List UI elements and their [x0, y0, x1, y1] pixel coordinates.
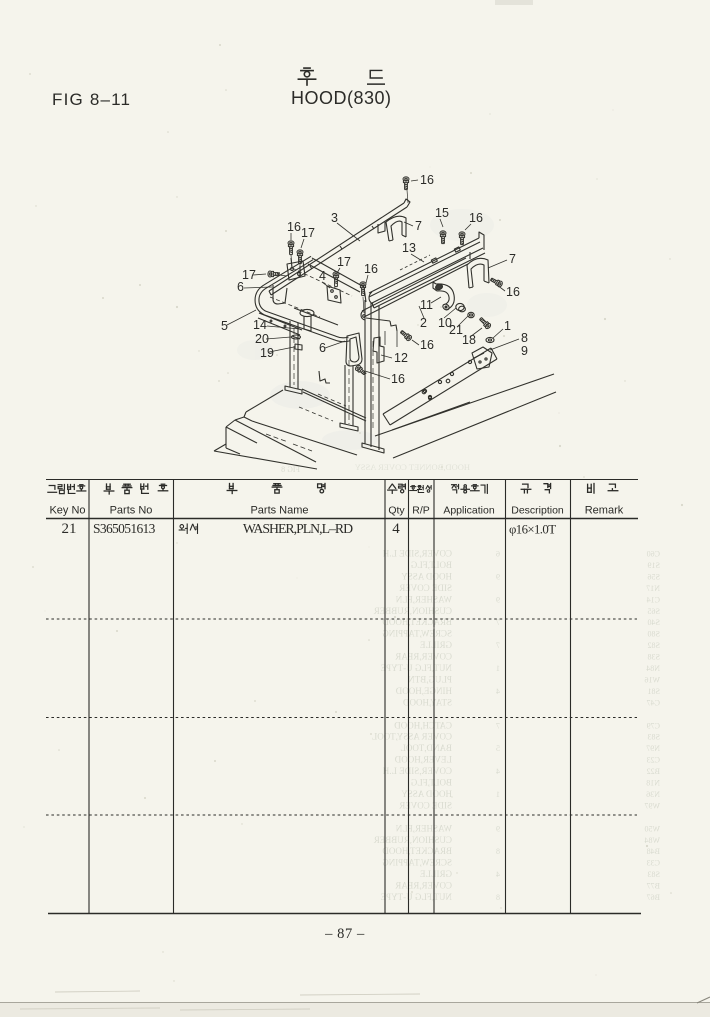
svg-text:S40: S40: [648, 618, 660, 627]
svg-text:SCREW,TAPPING: SCREW,TAPPING: [382, 629, 452, 639]
svg-text:C33: C33: [647, 859, 660, 868]
svg-text:1: 1: [504, 319, 511, 333]
svg-text:N97: N97: [646, 744, 660, 753]
svg-text:BOLT,FLG: BOLT,FLG: [410, 778, 452, 788]
svg-text:S38: S38: [648, 653, 660, 662]
svg-text:B22: B22: [647, 767, 660, 776]
svg-text:NUT,FLG U-TYPE: NUT,FLG U-TYPE: [380, 892, 452, 902]
svg-text:– 87 –: – 87 –: [324, 926, 365, 942]
svg-text:W84: W84: [644, 836, 660, 845]
svg-text:WASHER,PLN,L–RD: WASHER,PLN,L–RD: [243, 521, 353, 536]
svg-text:Remark: Remark: [585, 505, 624, 517]
svg-text:N18: N18: [646, 779, 660, 788]
svg-text:3: 3: [331, 211, 338, 225]
svg-text:R/P: R/P: [412, 505, 430, 517]
svg-text:7: 7: [509, 252, 516, 266]
svg-text:17: 17: [337, 255, 351, 269]
svg-text:16: 16: [469, 211, 483, 225]
svg-text:COVER,REAR: COVER,REAR: [395, 652, 452, 662]
svg-text:SCREW,TAPPING: SCREW,TAPPING: [382, 858, 452, 868]
svg-text:21: 21: [62, 521, 77, 537]
svg-text:LEVER,HOOD: LEVER,HOOD: [394, 755, 452, 765]
svg-text:S65: S65: [648, 607, 660, 616]
svg-text:9: 9: [496, 572, 500, 581]
svg-text:W50: W50: [644, 824, 660, 833]
svg-text:2: 2: [420, 316, 427, 330]
svg-text:8: 8: [521, 331, 528, 345]
svg-text:1: 1: [496, 664, 500, 673]
svg-text:7: 7: [496, 641, 500, 650]
svg-text:W97: W97: [644, 801, 660, 810]
svg-text:4: 4: [496, 687, 500, 696]
svg-text:B48: B48: [647, 847, 660, 856]
svg-text:B77: B77: [647, 882, 660, 891]
svg-text:16: 16: [506, 285, 520, 299]
svg-text:S80: S80: [648, 630, 660, 639]
svg-text:C79: C79: [647, 721, 660, 730]
svg-text:C47: C47: [647, 698, 660, 707]
svg-text:B67: B67: [647, 893, 660, 902]
svg-text:GRILLE: GRILLE: [420, 640, 452, 650]
svg-text:Parts Name: Parts Name: [250, 505, 308, 517]
svg-text:Description: Description: [511, 505, 564, 517]
svg-text:Parts No: Parts No: [110, 505, 153, 517]
svg-text:Qty: Qty: [388, 505, 405, 517]
svg-text:BRACKET,HOOD: BRACKET,HOOD: [382, 846, 452, 856]
svg-text:N17: N17: [646, 584, 660, 593]
svg-text:W16: W16: [644, 676, 660, 685]
svg-text:S83: S83: [648, 733, 660, 742]
svg-text:STAY,HOOD: STAY,HOOD: [402, 697, 452, 707]
svg-text:16: 16: [287, 220, 301, 234]
svg-text:S19: S19: [648, 561, 660, 570]
svg-text:6: 6: [496, 550, 500, 559]
svg-text:SIDE COVER: SIDE COVER: [399, 800, 452, 810]
svg-text:8: 8: [496, 847, 500, 856]
svg-text:4: 4: [496, 870, 500, 879]
svg-text:11: 11: [420, 298, 433, 312]
svg-text:S81: S81: [648, 687, 660, 696]
svg-text:COVER,SIDE L.H: COVER,SIDE L.H: [382, 549, 452, 559]
svg-text:16: 16: [391, 372, 405, 386]
svg-text:S82: S82: [648, 641, 660, 650]
svg-text:SIDE COVER: SIDE COVER: [399, 583, 452, 593]
svg-text:COVER ASSY,TOOL: COVER ASSY,TOOL: [372, 732, 452, 742]
svg-text:Key No: Key No: [49, 505, 85, 517]
svg-text:φ16×1.0T: φ16×1.0T: [509, 523, 556, 537]
svg-text:16: 16: [420, 173, 434, 187]
svg-text:13: 13: [402, 241, 416, 255]
svg-text:19: 19: [260, 346, 274, 360]
svg-text:COVER,REAR: COVER,REAR: [395, 881, 452, 891]
svg-text:1: 1: [496, 790, 500, 799]
svg-text:COVER,SIDE L.H: COVER,SIDE L.H: [382, 766, 452, 776]
svg-text:FIG 8: FIG 8: [281, 465, 300, 474]
svg-text:CATCH,HOOD: CATCH,HOOD: [394, 720, 452, 730]
svg-text:4: 4: [392, 521, 400, 537]
svg-text:18: 18: [462, 333, 476, 347]
svg-text:5: 5: [496, 744, 500, 753]
svg-text:8: 8: [496, 893, 500, 902]
svg-text:HOOD(830): HOOD(830): [291, 88, 392, 108]
svg-text:7: 7: [415, 219, 422, 233]
svg-text:GRILLE: GRILLE: [420, 869, 452, 879]
svg-text:FIG 8–11: FIG 8–11: [52, 90, 131, 109]
svg-text:9: 9: [521, 344, 528, 358]
svg-text:HOOD,BONNET COVER ASSY: HOOD,BONNET COVER ASSY: [355, 462, 470, 472]
svg-text:15: 15: [435, 206, 449, 220]
svg-text:S365051613: S365051613: [93, 521, 156, 536]
svg-text:7: 7: [496, 721, 500, 730]
svg-text:N84: N84: [646, 664, 660, 673]
svg-text:12: 12: [394, 351, 408, 365]
svg-text:17: 17: [301, 226, 315, 240]
svg-text:S56: S56: [648, 572, 660, 581]
svg-text:6: 6: [237, 280, 244, 294]
svg-text:5: 5: [221, 319, 228, 333]
svg-text:16: 16: [364, 262, 378, 276]
svg-text:C14: C14: [647, 595, 660, 604]
svg-text:14: 14: [253, 318, 267, 332]
svg-text:WASHER,PLN: WASHER,PLN: [395, 823, 452, 833]
svg-text:C60: C60: [647, 550, 660, 559]
svg-text:C23: C23: [647, 756, 660, 765]
svg-text:S83: S83: [648, 870, 660, 879]
svg-text:Application: Application: [443, 505, 495, 517]
svg-text:9: 9: [496, 595, 500, 604]
svg-text:NUT,FLG U-TYPE: NUT,FLG U-TYPE: [380, 663, 452, 673]
svg-text:21: 21: [449, 323, 463, 337]
svg-text:4: 4: [319, 269, 326, 283]
svg-text:WASHER,PLN: WASHER,PLN: [395, 594, 452, 604]
svg-text:HINGE,HOOD: HINGE,HOOD: [395, 686, 452, 696]
svg-text:16: 16: [420, 338, 434, 352]
svg-text:N36: N36: [646, 790, 660, 799]
svg-text:4: 4: [496, 767, 500, 776]
svg-text:7: 7: [496, 618, 500, 627]
svg-text:PLUG,BTN: PLUG,BTN: [408, 675, 452, 685]
svg-text:9: 9: [496, 824, 500, 833]
svg-text:6: 6: [319, 341, 326, 355]
svg-text:BOLT,FLG: BOLT,FLG: [410, 560, 452, 570]
